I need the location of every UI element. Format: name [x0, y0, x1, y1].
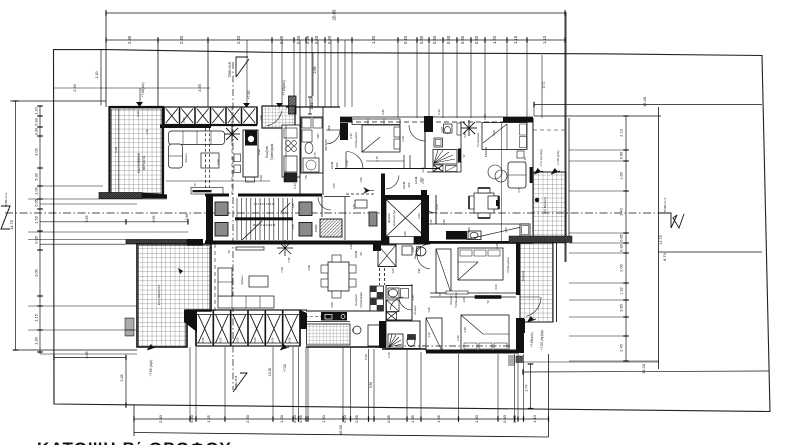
svg-text:0.93: 0.93: [34, 118, 39, 126]
svg-text:19.28: 19.28: [642, 96, 647, 107]
svg-text:1 2 3 4 5 6 7 8 9 10: 1 2 3 4 5 6 7 8 9 10: [254, 203, 275, 206]
svg-text:3.28: 3.28: [120, 375, 124, 382]
svg-text:Τραπεζαρία: Τραπεζαρία: [359, 292, 363, 308]
svg-text:ανελκυστήρα: ανελκυστήρα: [392, 210, 396, 227]
svg-text:2.33: 2.33: [293, 183, 297, 189]
svg-text:0.65: 0.65: [354, 414, 359, 423]
svg-text:0.80: 0.80: [460, 35, 465, 44]
svg-text:14.75: 14.75: [659, 235, 663, 245]
svg-text:19.30: 19.30: [268, 368, 272, 377]
svg-text:1.15: 1.15: [411, 295, 415, 301]
svg-text:0.85: 0.85: [620, 234, 624, 241]
svg-text:0.70: 0.70: [387, 352, 391, 358]
svg-text:7.30: 7.30: [280, 267, 284, 273]
svg-text:2.40: 2.40: [72, 83, 77, 91]
svg-text:ΝΙΠ: ΝΙΠ: [316, 134, 320, 139]
svg-text:1.90: 1.90: [359, 177, 363, 183]
svg-text:1.53: 1.53: [34, 216, 39, 224]
svg-text:3.36: 3.36: [369, 382, 373, 388]
svg-text:0.95: 0.95: [386, 414, 391, 423]
svg-text:1.61: 1.61: [310, 103, 314, 109]
svg-text:2.00: 2.00: [620, 264, 624, 271]
svg-text:0.80: 0.80: [502, 414, 507, 423]
svg-text:3.00: 3.00: [34, 268, 39, 276]
svg-text:1.30: 1.30: [371, 35, 376, 44]
svg-text:+7.65(κολ): +7.65(κολ): [282, 80, 286, 96]
svg-text:1.20: 1.20: [492, 35, 497, 44]
svg-text:Υπ/δωμάτιο: Υπ/δωμάτιο: [454, 292, 458, 308]
svg-text:16.55: 16.55: [338, 424, 343, 435]
svg-text:0.80: 0.80: [483, 114, 487, 120]
svg-text:0.60: 0.60: [620, 152, 624, 159]
svg-text:+7.65 (υψλ): +7.65 (υψλ): [149, 360, 153, 377]
svg-text:1.70: 1.70: [145, 129, 149, 135]
svg-text:1.75: 1.75: [313, 152, 317, 158]
svg-text:ΔΙΑΜ.: ΔΙΑΜ.: [402, 181, 406, 189]
svg-text:0.80: 0.80: [419, 35, 424, 44]
svg-text:0.95: 0.95: [34, 199, 39, 207]
svg-text:20: 20: [359, 252, 363, 256]
svg-text:0.85: 0.85: [279, 35, 284, 44]
svg-text:19.34: 19.34: [641, 363, 646, 374]
svg-text:TV: TV: [462, 154, 466, 158]
svg-text:1.35: 1.35: [410, 414, 415, 423]
svg-text:1.10: 1.10: [542, 35, 547, 44]
svg-text:TV: TV: [227, 250, 231, 254]
svg-text:1.28: 1.28: [291, 224, 295, 230]
svg-text:+7.65(κολ): +7.65(κολ): [141, 82, 145, 97]
svg-text:2.10: 2.10: [345, 160, 349, 166]
svg-text:2.20: 2.20: [182, 117, 186, 123]
svg-text:+7.65(κολ): +7.65(κολ): [530, 332, 534, 347]
svg-text:1.92: 1.92: [620, 287, 624, 294]
svg-text:1.15: 1.15: [513, 35, 518, 44]
svg-text:1.10: 1.10: [532, 414, 537, 423]
svg-text:1.90: 1.90: [417, 268, 421, 274]
svg-text:3.75: 3.75: [517, 187, 521, 193]
svg-text:+7.00 (σγ.βερ): +7.00 (σγ.βερ): [540, 330, 544, 351]
svg-text:TV: TV: [193, 183, 197, 187]
svg-text:1.05: 1.05: [332, 183, 336, 189]
svg-text:2.10: 2.10: [620, 129, 624, 136]
svg-text:0.60: 0.60: [288, 337, 292, 343]
svg-text:3.30: 3.30: [216, 159, 220, 165]
svg-text:2.30: 2.30: [456, 335, 460, 341]
svg-text:0.30: 0.30: [620, 244, 624, 251]
svg-text:2.40: 2.40: [620, 208, 624, 215]
svg-text:0.60: 0.60: [201, 337, 205, 343]
svg-text:ΛΕΚ: ΛΕΚ: [327, 125, 331, 131]
svg-text:2.33: 2.33: [435, 204, 439, 210]
svg-text:1.00: 1.00: [411, 247, 415, 253]
svg-text:1.05: 1.05: [504, 227, 508, 233]
svg-text:0.80: 0.80: [432, 35, 437, 44]
svg-text:3.55: 3.55: [197, 84, 202, 92]
svg-text:3.15: 3.15: [401, 136, 405, 142]
svg-text:1.20: 1.20: [95, 72, 99, 79]
svg-text:1.66: 1.66: [462, 297, 466, 303]
svg-text:Λουτρό: Λουτρό: [413, 305, 417, 315]
svg-text:Υπ/δωμάτιο: Υπ/δωμάτιο: [506, 257, 510, 273]
svg-text:ΤΟΜΗ Α-Α: ΤΟΜΗ Α-Α: [4, 193, 8, 207]
svg-text:1.00: 1.00: [279, 414, 284, 423]
svg-text:0.30: 0.30: [437, 109, 441, 115]
svg-text:Σαλόνι: Σαλόνι: [184, 153, 188, 162]
svg-text:1.10: 1.10: [427, 332, 431, 338]
svg-text:ΚΑΛΥΜΜΕΝΗ: ΚΑΛΥΜΜΕΝΗ: [137, 152, 141, 173]
svg-text:ΔΙΑΜ.: ΔΙΑΜ.: [354, 250, 358, 258]
svg-text:Τραπεζαρία: Τραπεζαρία: [270, 144, 274, 161]
svg-text:202: 202: [407, 182, 411, 187]
svg-text:1.25: 1.25: [206, 414, 211, 423]
svg-text:1.66: 1.66: [436, 414, 441, 423]
svg-text:0.95: 0.95: [34, 236, 39, 244]
svg-text:2.00: 2.00: [417, 213, 421, 219]
svg-text:0.90: 0.90: [257, 149, 261, 155]
svg-text:0.60: 0.60: [270, 337, 274, 343]
svg-text:2.74: 2.74: [525, 385, 529, 392]
svg-text:+7.00: +7.00: [247, 91, 251, 100]
svg-text:1.30: 1.30: [34, 336, 39, 344]
svg-text:1.00: 1.00: [391, 268, 395, 274]
svg-text:3.55: 3.55: [152, 216, 156, 223]
svg-text:2.30: 2.30: [245, 414, 250, 423]
svg-text:Κουζίνα/: Κουζίνα/: [265, 146, 269, 158]
svg-text:1.46: 1.46: [349, 244, 353, 250]
svg-text:3.71: 3.71: [542, 82, 546, 89]
svg-text:3.15: 3.15: [375, 156, 379, 162]
svg-text:ΔΙΑΜ.: ΔΙΑΜ.: [330, 161, 334, 169]
svg-text:ΤΟΜΗ Α-Α: ΤΟΜΗ Α-Α: [663, 198, 667, 212]
svg-text:0.80: 0.80: [474, 35, 479, 44]
svg-text:2.88: 2.88: [463, 132, 467, 138]
svg-text:1.28: 1.28: [291, 203, 295, 209]
svg-text:0.80: 0.80: [446, 35, 451, 44]
svg-text:3.00: 3.00: [494, 284, 498, 290]
svg-text:8.74: 8.74: [662, 252, 667, 261]
svg-text:2.88: 2.88: [313, 67, 317, 74]
svg-text:ΚΑΛ.ΒΕΡΑΝΤΑ: ΚΑΛ.ΒΕΡΑΝΤΑ: [157, 285, 161, 305]
svg-text:0.40: 0.40: [403, 35, 408, 44]
svg-text:3.85: 3.85: [620, 304, 624, 311]
svg-text:2.35: 2.35: [349, 133, 353, 139]
svg-text:2.40: 2.40: [158, 414, 163, 423]
svg-text:ΠΛ.: ΠΛ.: [351, 327, 355, 332]
svg-text:20.65: 20.65: [332, 9, 337, 21]
svg-text:4.05: 4.05: [330, 302, 334, 308]
svg-text:0.60: 0.60: [253, 337, 257, 343]
svg-text:0.60: 0.60: [218, 337, 222, 343]
svg-text:+7.65 (κολ): +7.65 (κολ): [556, 151, 560, 166]
svg-text:1.48: 1.48: [427, 307, 431, 313]
svg-text:Βεράντα: Βεράντα: [521, 270, 525, 281]
svg-text:1.60: 1.60: [620, 172, 624, 179]
svg-text:1.20: 1.20: [34, 106, 39, 114]
svg-text:3.00: 3.00: [492, 130, 496, 136]
svg-text:1.80: 1.80: [403, 231, 407, 237]
svg-text:ΚΑΤΟΨΗ Β΄ ΟΡΟΦΟΥ: ΚΑΤΟΨΗ Β΄ ΟΡΟΦΟΥ: [37, 439, 232, 445]
svg-text:+7.00: +7.00: [283, 364, 287, 372]
svg-text:Τρ.Κουζίνα: Τρ.Κουζίνα: [476, 133, 480, 147]
svg-text:ΣΑΛΟΝΙ: ΣΑΛΟΝΙ: [484, 147, 488, 158]
svg-text:2.46: 2.46: [185, 214, 189, 220]
svg-text:1.10: 1.10: [523, 157, 527, 163]
svg-text:0.80: 0.80: [381, 109, 385, 115]
svg-text:ΠΛ.: ΠΛ.: [304, 174, 308, 179]
svg-text:1.45: 1.45: [429, 219, 433, 225]
svg-text:5.30: 5.30: [114, 147, 118, 153]
svg-text:2.30: 2.30: [179, 35, 184, 44]
svg-text:3.90: 3.90: [307, 265, 311, 271]
svg-text:TV: TV: [486, 300, 490, 304]
svg-text:5.30: 5.30: [34, 172, 39, 180]
svg-text:ΛΟΥΤΡΟ: ΛΟΥΤΡΟ: [324, 138, 328, 150]
svg-text:0.30: 0.30: [34, 127, 39, 135]
svg-text:3.90: 3.90: [259, 175, 263, 181]
svg-text:0.60: 0.60: [495, 243, 499, 249]
svg-text:0.25: 0.25: [364, 354, 368, 360]
svg-text:ΑΝΕΒ.: ΑΝΕΒ.: [314, 224, 318, 233]
svg-text:ΒΕΡΑΝΤΑ: ΒΕΡΑΝΤΑ: [142, 155, 146, 170]
svg-text:+7.0 (σγ.βερ): +7.0 (σγ.βερ): [539, 149, 543, 167]
svg-text:3.25: 3.25: [85, 216, 89, 223]
svg-text:3.38: 3.38: [463, 327, 467, 333]
svg-text:7.25: 7.25: [287, 257, 291, 263]
svg-text:14.75: 14.75: [9, 219, 14, 230]
svg-text:2.45: 2.45: [620, 344, 624, 351]
svg-text:4.00: 4.00: [467, 227, 471, 233]
svg-text:ΤΟΜΗ Β-Β: ΤΟΜΗ Β-Β: [228, 62, 232, 78]
svg-text:0.60: 0.60: [236, 337, 240, 343]
svg-text:1.75: 1.75: [352, 204, 356, 210]
svg-text:Φρεάτιο: Φρεάτιο: [387, 213, 391, 223]
svg-text:Υπ.Βεράντα: Υπ.Βεράντα: [543, 197, 547, 213]
svg-text:2.40: 2.40: [236, 35, 241, 44]
svg-text:1.00: 1.00: [34, 186, 39, 194]
svg-text:ΔΙΑΜ.: ΔΙΑΜ.: [414, 176, 418, 184]
svg-text:Κύριος: Κύριος: [449, 295, 453, 305]
svg-text:18 17 16 15 14 13 12: 18 17 16 15 14 13 12: [253, 224, 276, 227]
svg-text:202: 202: [335, 162, 339, 167]
svg-text:1.05: 1.05: [421, 167, 425, 173]
svg-text:0.90: 0.90: [442, 219, 446, 225]
svg-text:1.15: 1.15: [34, 314, 39, 322]
svg-text:1.45: 1.45: [259, 115, 263, 121]
svg-text:1.50: 1.50: [321, 414, 326, 423]
svg-text:Υπ/δωμάτιο: Υπ/δωμάτιο: [354, 132, 358, 148]
svg-text:ΤΟΜΗ Β-Β: ΤΟΜΗ Β-Β: [234, 376, 238, 391]
svg-text:1.80: 1.80: [474, 414, 479, 423]
svg-text:TV: TV: [438, 293, 442, 297]
svg-text:Σαλόνι: Σαλόνι: [240, 275, 244, 284]
svg-text:2.35: 2.35: [421, 178, 425, 184]
svg-text:3.00: 3.00: [34, 147, 39, 155]
svg-text:2.20: 2.20: [136, 111, 140, 117]
svg-text:2.35: 2.35: [127, 35, 132, 44]
svg-text:Κουζίνα/: Κουζίνα/: [354, 294, 358, 305]
